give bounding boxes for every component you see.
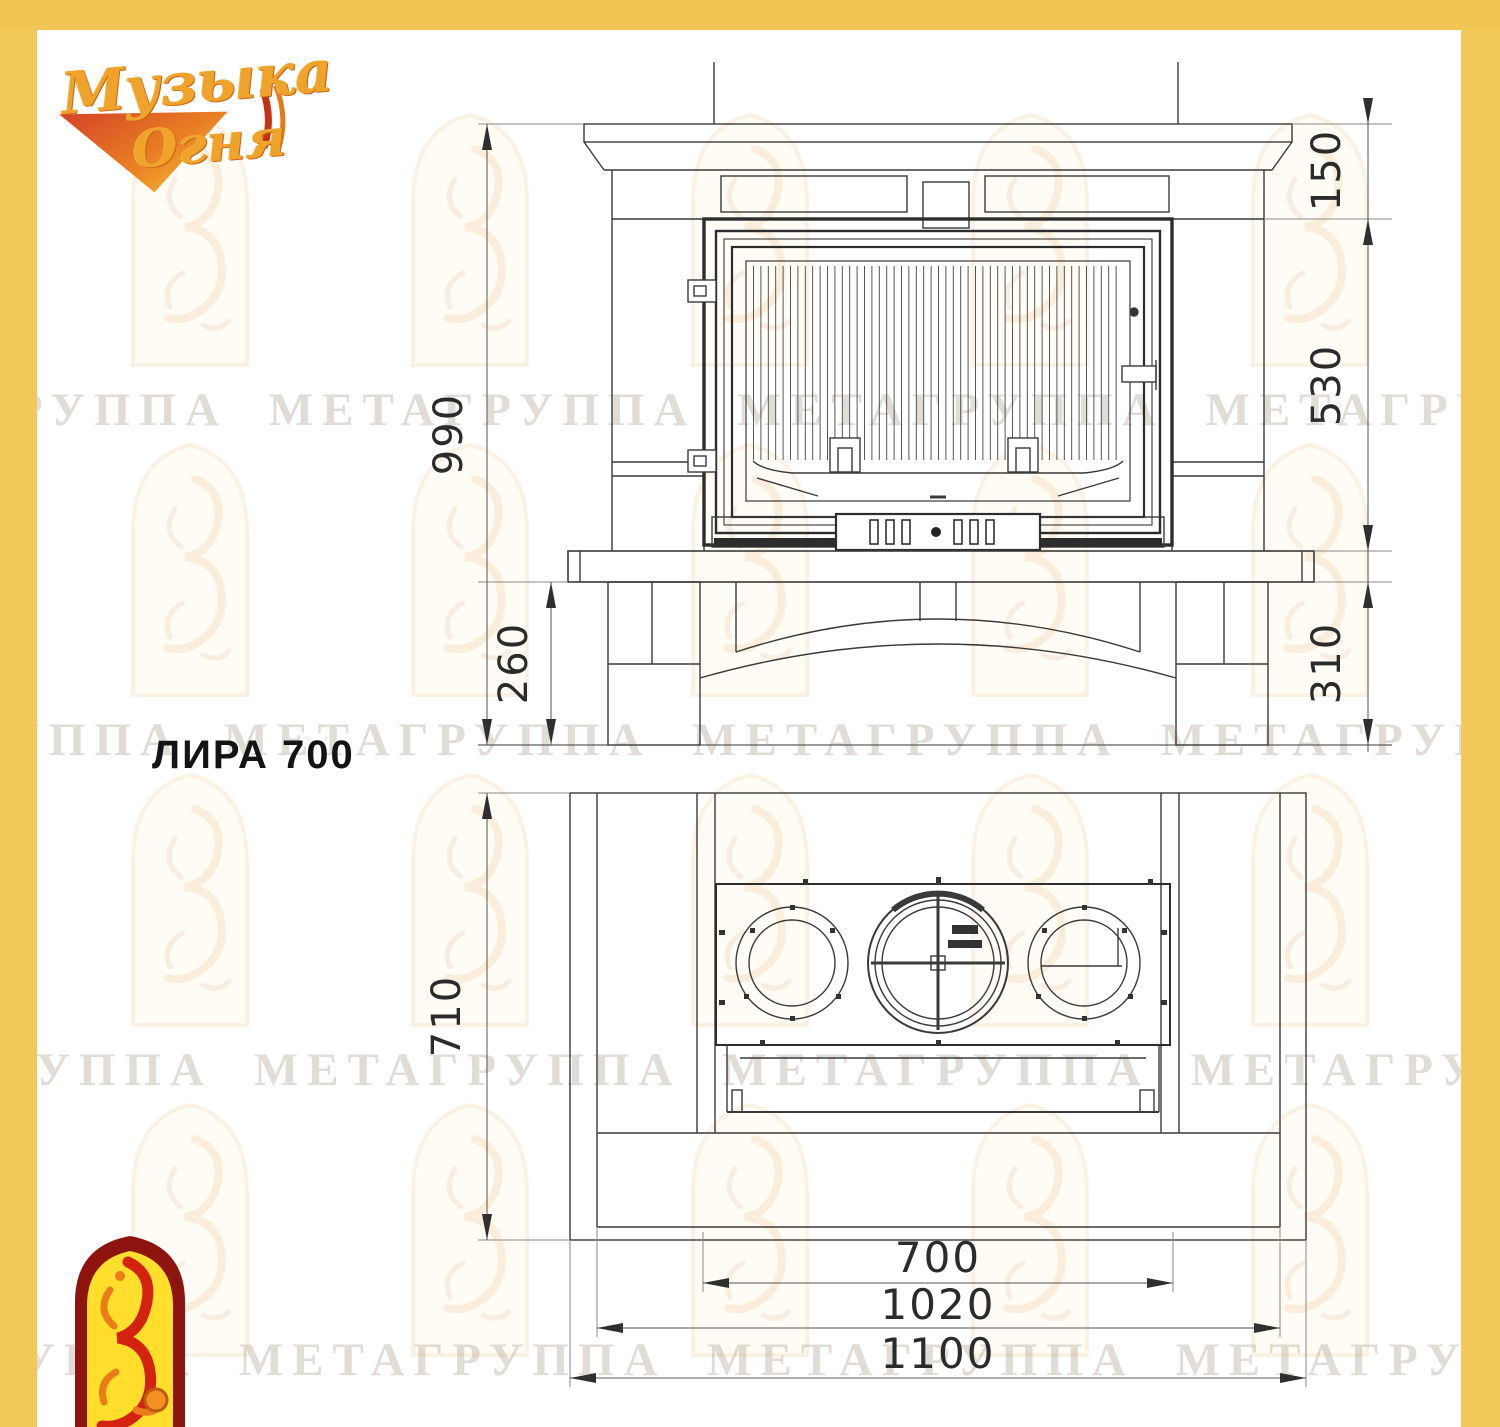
pedestal <box>608 582 1268 745</box>
frieze-center-block <box>923 182 969 228</box>
frame-right-bar <box>1461 30 1500 1427</box>
grate-feet <box>830 438 1038 472</box>
frame-top-bar <box>0 0 1500 30</box>
frieze-panel <box>721 176 907 212</box>
frieze-panel <box>985 176 1169 212</box>
hearth-slab <box>568 551 1314 582</box>
firebird-logo <box>70 1232 190 1427</box>
dim-label-710: 710 <box>424 975 470 1057</box>
dim-label-990: 990 <box>426 393 472 475</box>
plan-duct-right <box>1028 905 1140 1021</box>
plan-duct-left <box>736 905 848 1021</box>
arch-inner <box>736 619 1140 652</box>
mantel-shelf <box>584 124 1292 142</box>
firebox-door <box>732 247 1144 517</box>
door-hinges <box>688 280 716 472</box>
dim-label-700: 700 <box>895 1233 981 1282</box>
arch-outer <box>700 644 1176 678</box>
dim-label-260: 260 <box>491 622 537 704</box>
dim-label-1020: 1020 <box>881 1280 996 1329</box>
dim-label-530: 530 <box>1304 344 1350 426</box>
page: ГРУППА МЕТАГРУППА МЕТАГРУППА МЕТАГРУППА … <box>0 0 1500 1427</box>
brand-logo: Музыка Огня <box>44 27 360 252</box>
dim-label-1100: 1100 <box>881 1329 996 1378</box>
dim-label-310: 310 <box>1304 622 1350 704</box>
dim-label-150: 150 <box>1304 129 1350 211</box>
dimension-lines <box>487 98 1368 1378</box>
plan-view <box>570 793 1306 1240</box>
dimension-arrows <box>482 98 1373 1383</box>
extension-lines <box>478 124 1392 1387</box>
plan-flange <box>727 1045 1159 1112</box>
door-latch <box>1122 308 1156 390</box>
frame-left-bar <box>0 30 37 1427</box>
front-elevation <box>478 62 1392 745</box>
product-title: ЛИРА 700 <box>152 733 355 778</box>
plan-flue-center <box>868 893 1008 1033</box>
grill-ribs <box>754 266 1117 460</box>
